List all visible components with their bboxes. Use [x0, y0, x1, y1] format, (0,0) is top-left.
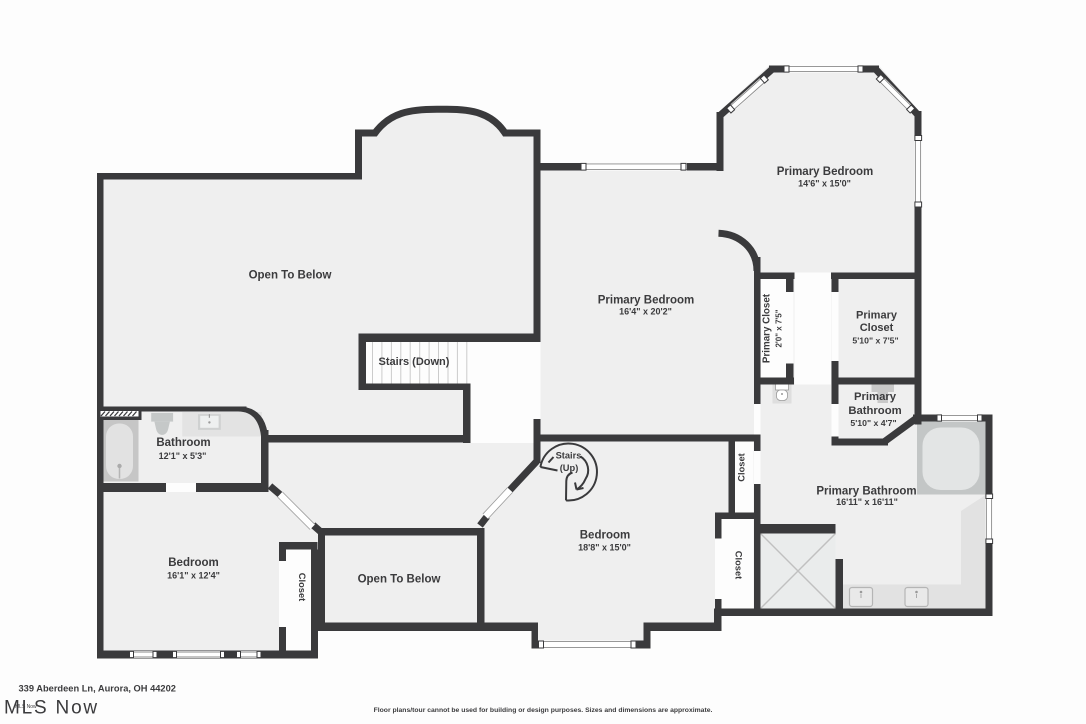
svg-text:Stairs (Down): Stairs (Down): [379, 356, 450, 368]
svg-text:Stairs: Stairs: [556, 450, 582, 460]
svg-text:Bathroom: Bathroom: [848, 405, 901, 417]
svg-text:12'1" x 5'3": 12'1" x 5'3": [159, 451, 207, 461]
svg-text:Primary: Primary: [854, 391, 897, 403]
svg-text:339 Aberdeen Ln, Aurora, OH 44: 339 Aberdeen Ln, Aurora, OH 44202: [19, 684, 176, 694]
svg-text:16'11" x 16'11": 16'11" x 16'11": [836, 497, 898, 507]
svg-text:(Up): (Up): [560, 463, 579, 473]
svg-text:Bedroom: Bedroom: [580, 530, 630, 542]
svg-text:Primary: Primary: [856, 310, 898, 322]
svg-text:Primary Bedroom: Primary Bedroom: [777, 166, 874, 178]
svg-text:Open To Below: Open To Below: [358, 574, 441, 586]
svg-text:5'10" x 7'5": 5'10" x 7'5": [852, 336, 898, 346]
svg-text:Primary Bedroom: Primary Bedroom: [598, 295, 695, 307]
svg-text:Closet: Closet: [860, 322, 894, 334]
svg-text:Primary Bathroom: Primary Bathroom: [816, 486, 916, 498]
svg-text:5'10" x 4'7": 5'10" x 4'7": [850, 418, 896, 428]
svg-text:Floor plans/tour cannot be use: Floor plans/tour cannot be used for buil…: [374, 707, 713, 714]
svg-text:18'8" x 15'0": 18'8" x 15'0": [578, 543, 631, 553]
svg-text:Open To Below: Open To Below: [249, 270, 332, 282]
svg-text:16'4" x 20'2": 16'4" x 20'2": [619, 307, 672, 317]
svg-text:16'1" x 12'4": 16'1" x 12'4": [167, 571, 220, 581]
svg-text:MLS Now: MLS Now: [15, 704, 37, 710]
svg-text:Closet: Closet: [737, 453, 747, 481]
svg-text:Closet: Closet: [734, 551, 744, 579]
svg-text:2'0" x 7'5": 2'0" x 7'5": [775, 309, 784, 347]
svg-text:Bathroom: Bathroom: [156, 437, 210, 449]
svg-text:Bedroom: Bedroom: [168, 557, 218, 569]
svg-text:Closet: Closet: [297, 573, 307, 601]
svg-text:14'6" x 15'0": 14'6" x 15'0": [798, 179, 851, 189]
svg-text:Primary Closet: Primary Closet: [762, 293, 773, 363]
